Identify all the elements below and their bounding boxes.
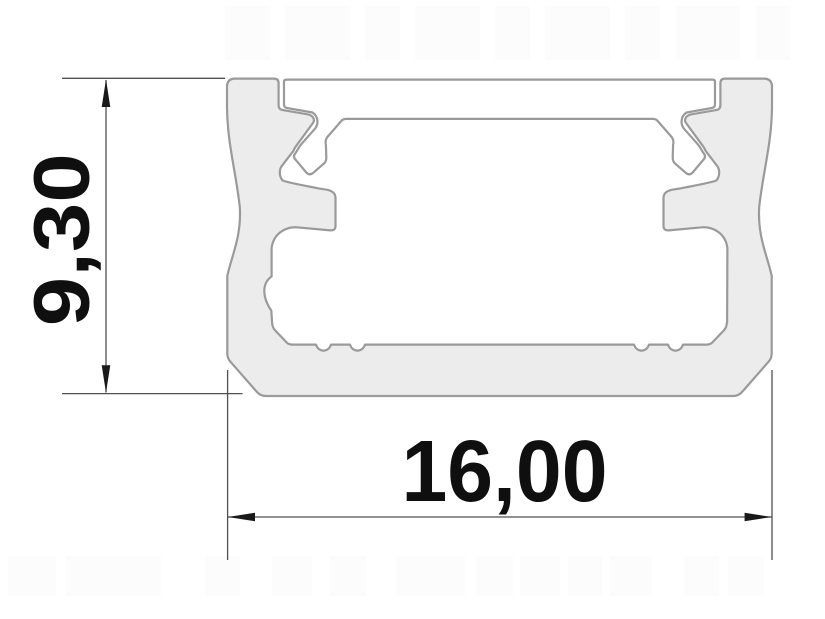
svg-text:16,00: 16,00: [402, 423, 608, 520]
svg-text:9,30: 9,30: [17, 153, 106, 326]
